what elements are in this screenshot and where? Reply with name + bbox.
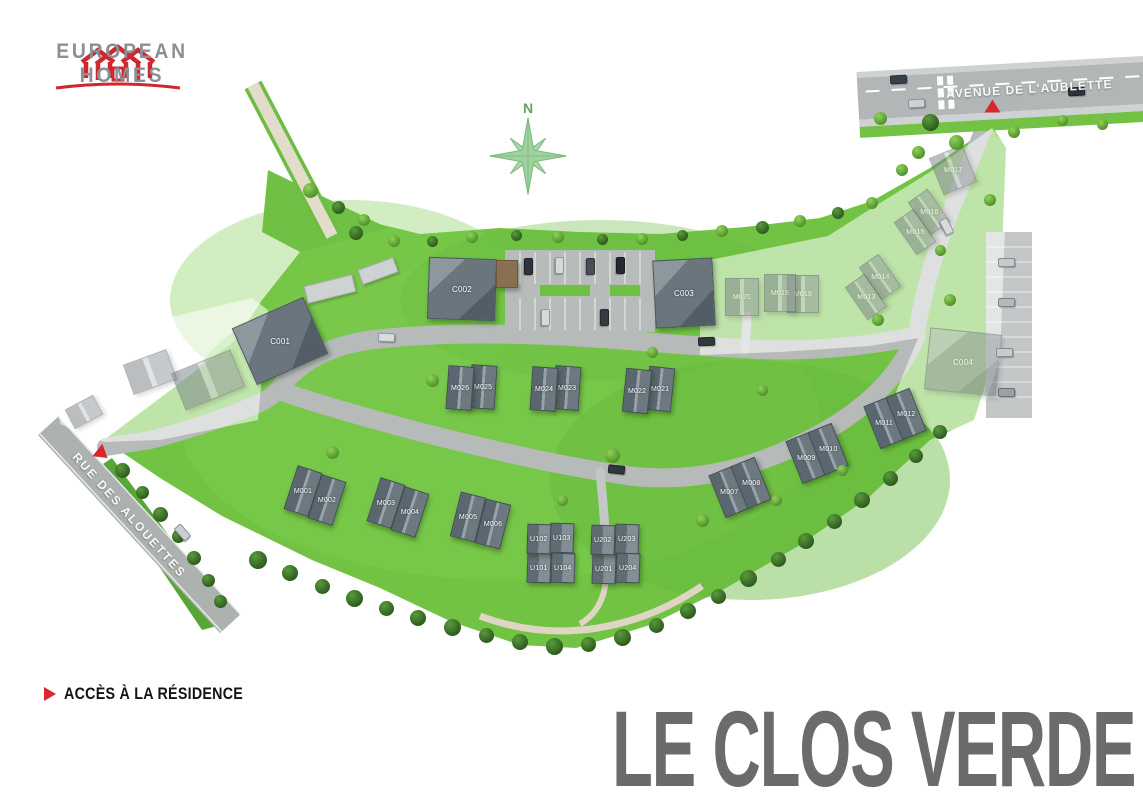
brand-line1: EUROPEAN bbox=[47, 40, 198, 64]
page-title: LE CLOS VERDE bbox=[612, 700, 1135, 797]
legend-access-label: ACCÈS À LA RÉSIDENCE bbox=[64, 684, 243, 704]
compass-rose: N bbox=[478, 106, 578, 206]
parking-lot bbox=[505, 250, 655, 332]
brand-line2: HOMES bbox=[47, 64, 198, 88]
site-plan-page: M001M002M003M004M005M006M007M008M009M010… bbox=[0, 0, 1143, 800]
avenue-access-marker-icon bbox=[985, 100, 1001, 113]
legend: ACCÈS À LA RÉSIDENCE bbox=[44, 684, 277, 704]
access-arrow-icon bbox=[44, 687, 56, 701]
compass-star-icon bbox=[478, 106, 578, 206]
european-homes-logo: EUROPEAN HOMES bbox=[40, 40, 204, 88]
